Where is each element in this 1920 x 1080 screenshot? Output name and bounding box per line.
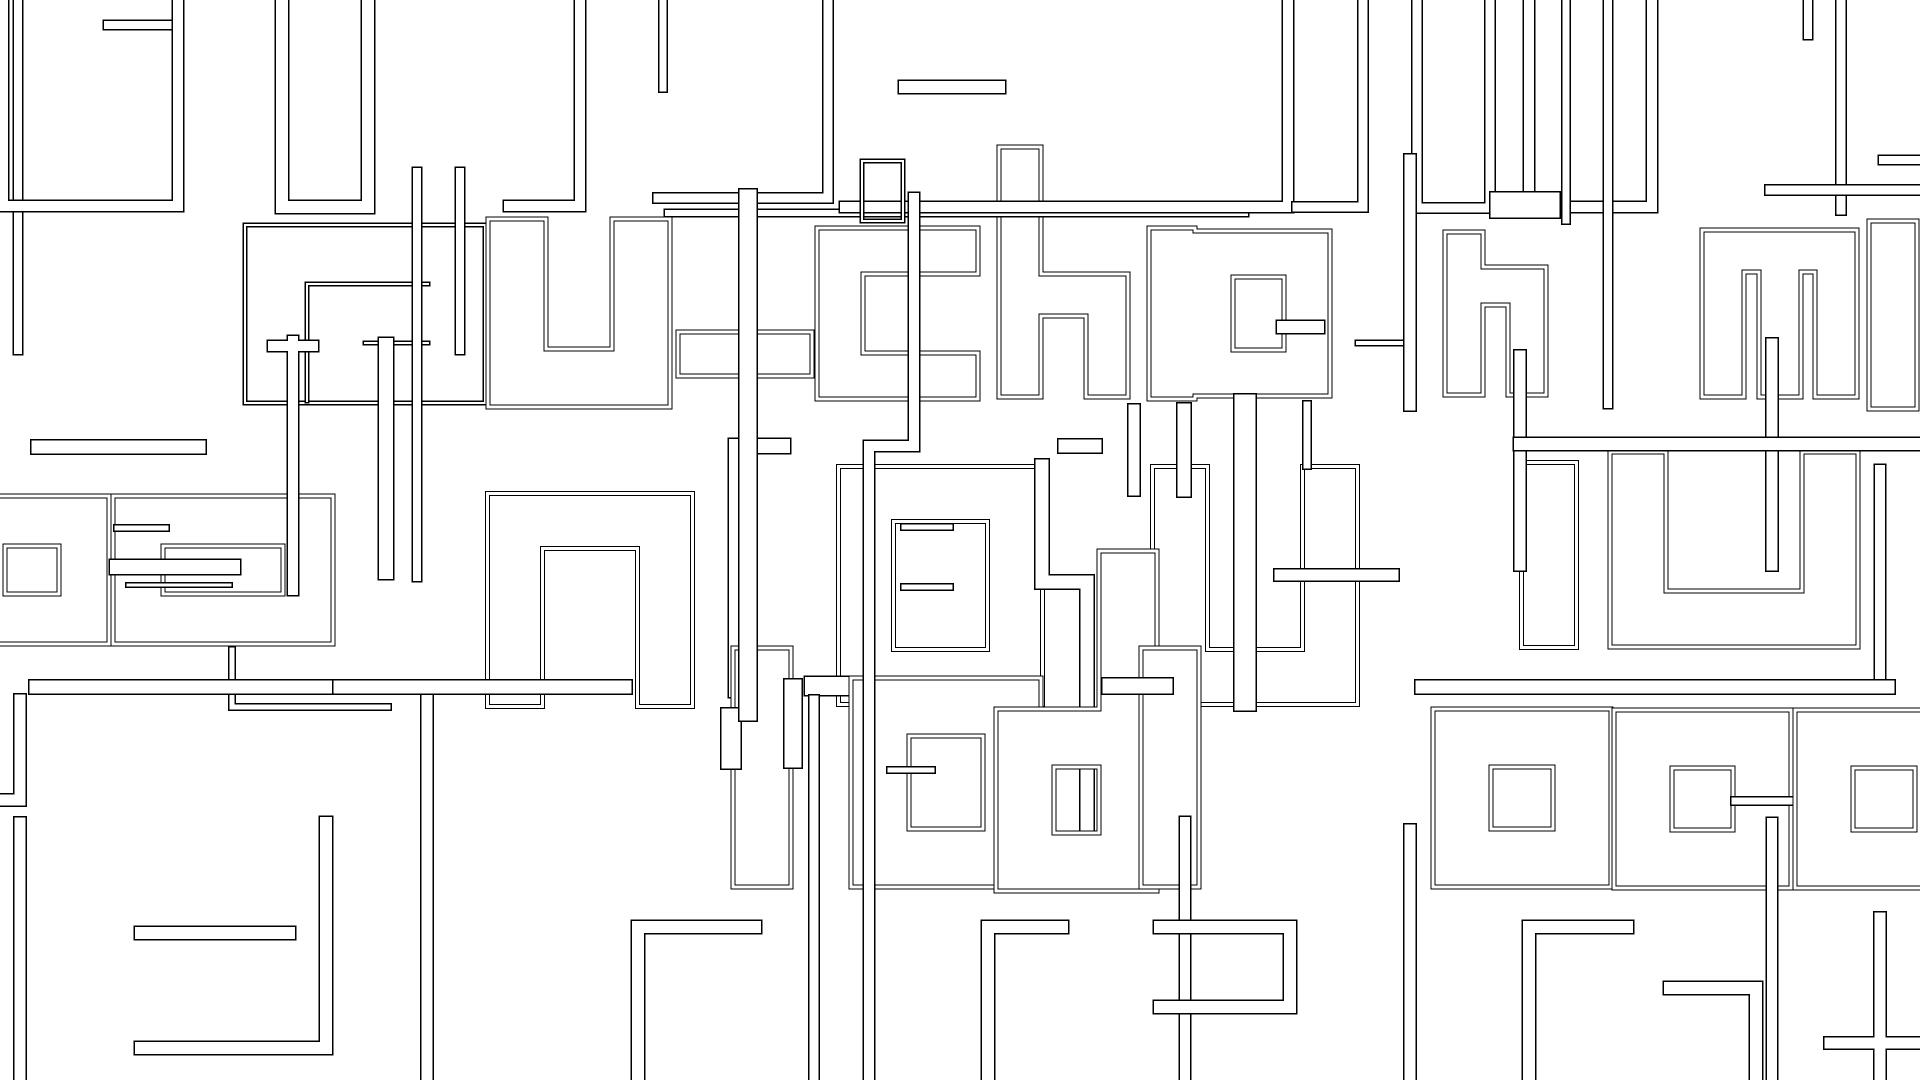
row1-box-6 — [1297, 0, 1363, 207]
row1-box-left-counter — [3, 0, 178, 206]
row2-letter-p-inner-counter — [1172, 251, 1307, 376]
row3-connector — [232, 650, 388, 707]
row4-letter-e2-inner-counter — [1462, 738, 1582, 858]
row1-box-4-counter — [658, 0, 828, 198]
row2-letter-a-box — [245, 225, 485, 403]
row5-hook-3 — [988, 927, 1062, 1080]
row5-hook-4-counter — [1529, 927, 1627, 1080]
row1-box-2-counter — [282, 0, 368, 207]
row5-hook-4 — [1529, 927, 1627, 1080]
row4-letter-o-right-inner-counter — [1824, 739, 1920, 859]
row1-box-5 — [845, 0, 1288, 207]
row2-letter-m-inner-counter — [1723, 251, 1836, 376]
row1-box-5-counter — [845, 0, 1288, 207]
row5-hook-2 — [638, 927, 755, 1080]
row1-box-6-counter — [1297, 0, 1363, 207]
row4-letter-e-inner-counter — [880, 707, 1012, 858]
abstract-line-art-canvas — [0, 0, 1920, 1080]
row5-hook-5 — [1670, 988, 1756, 1080]
line-art-drawing — [0, 0, 1920, 1080]
row5-hook-3-counter — [988, 927, 1062, 1080]
row5-hook-5-counter — [1670, 988, 1756, 1080]
row2-letter-a-box-counter — [245, 225, 485, 403]
row1-box-4 — [658, 0, 828, 198]
row1-box-7-counter — [1417, 0, 1490, 208]
row1-foot-3-counter — [509, 0, 580, 206]
row1-box-7 — [1417, 0, 1490, 208]
row5-left-pieces-counter — [0, 700, 20, 1080]
row1-box-left — [3, 0, 178, 206]
row3-letter-n-inner-counter — [515, 521, 665, 679]
row2-letter-u-inner-counter — [517, 248, 641, 378]
row1-box-8-counter — [1529, 0, 1652, 207]
row1-box-2 — [282, 0, 368, 207]
row5-right-pieces-counter — [1830, 918, 1920, 1080]
row1-box-8 — [1529, 0, 1652, 207]
row2-letter-c-inner-counter — [840, 251, 955, 376]
row3-letter-e-left-inner-counter — [0, 521, 84, 619]
row3-connector-counter — [232, 650, 388, 707]
row5-hook-2-counter — [638, 927, 755, 1080]
row1-foot-3 — [509, 0, 580, 206]
